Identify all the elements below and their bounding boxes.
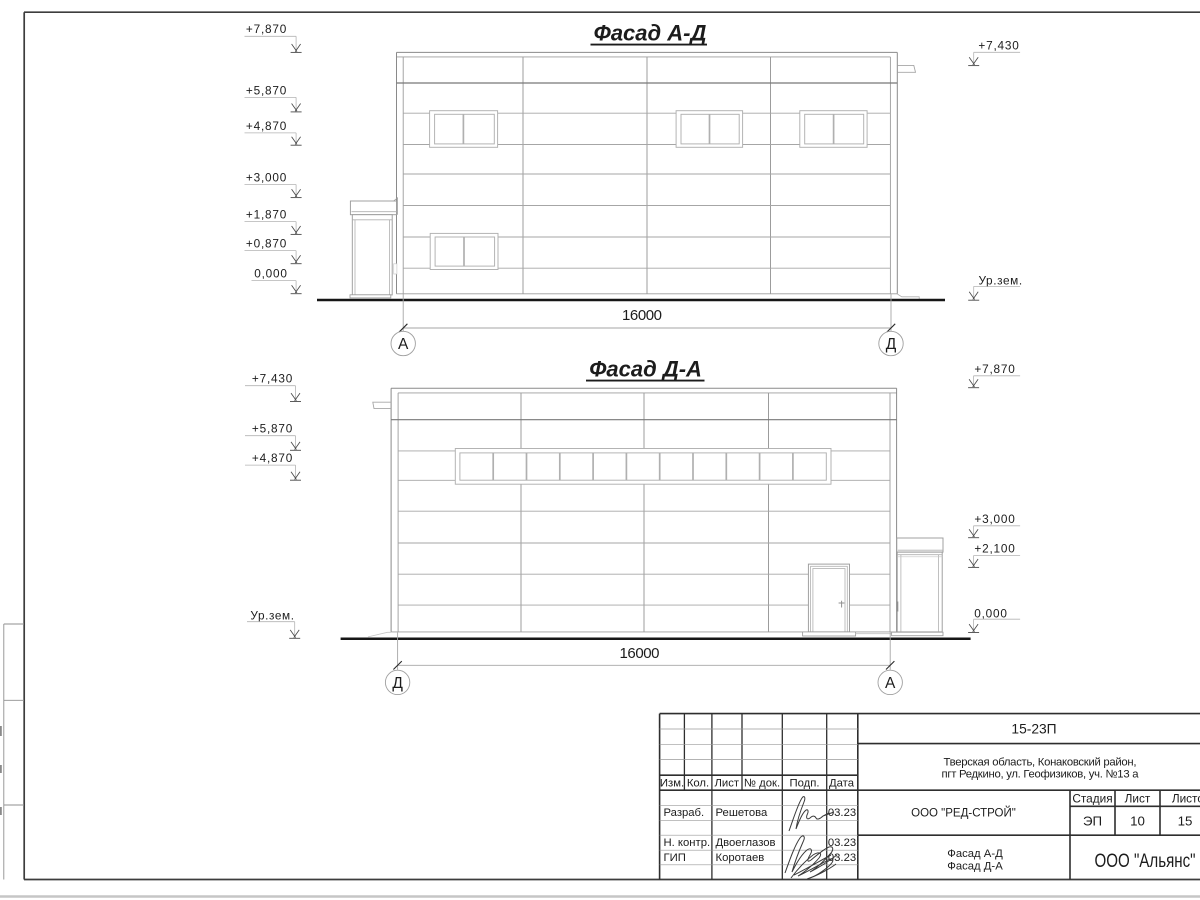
svg-text:ГИП: ГИП	[664, 852, 686, 864]
svg-text:Фасад Д-А: Фасад Д-А	[589, 357, 702, 382]
svg-text:+4,870: +4,870	[246, 119, 287, 133]
svg-text:Д: Д	[392, 675, 403, 692]
svg-text:Подп.: Подп.	[789, 777, 819, 789]
svg-text:Двоеглазов: Двоеглазов	[716, 837, 776, 849]
svg-text:А: А	[885, 675, 896, 692]
svg-text:№ док.: № док.	[744, 777, 780, 789]
svg-text:+7,870: +7,870	[974, 362, 1015, 376]
svg-text:Фасад А-Д: Фасад А-Д	[947, 848, 1003, 860]
svg-text:+0,870: +0,870	[246, 237, 287, 251]
svg-text:15-23П: 15-23П	[1011, 721, 1056, 736]
svg-text:+4,870: +4,870	[252, 451, 293, 465]
svg-text:0,000: 0,000	[974, 606, 1008, 620]
svg-text:Коротаев: Коротаев	[716, 852, 765, 864]
svg-text:Разраб.: Разраб.	[664, 807, 705, 819]
svg-text:ЭП: ЭП	[1083, 813, 1102, 828]
svg-text:15: 15	[1178, 813, 1193, 828]
svg-text:+2,100: +2,100	[974, 542, 1015, 556]
svg-text:Ур.зем.: Ур.зем.	[250, 608, 294, 622]
svg-text:16000: 16000	[620, 645, 660, 662]
svg-text:Фасад А-Д: Фасад А-Д	[594, 21, 707, 46]
svg-text:пгт Редкино, ул. Геофизиков, у: пгт Редкино, ул. Геофизиков, уч. №13 а	[942, 769, 1140, 781]
svg-text:Лист: Лист	[1125, 791, 1151, 805]
svg-text:Дата: Дата	[829, 777, 855, 789]
svg-text:+7,430: +7,430	[252, 372, 293, 386]
svg-text:Д: Д	[886, 336, 897, 353]
svg-text:Изм.: Изм.	[660, 777, 684, 789]
svg-text:0,000: 0,000	[254, 267, 288, 281]
svg-text:16000: 16000	[622, 307, 662, 324]
svg-text:+3,000: +3,000	[974, 512, 1015, 526]
svg-text:ООО "РЕД-СТРОЙ": ООО "РЕД-СТРОЙ"	[911, 807, 1016, 820]
svg-text:Ур.зем.: Ур.зем.	[978, 274, 1022, 288]
svg-text:Листов: Листов	[1172, 791, 1200, 805]
svg-text:Лист: Лист	[715, 777, 740, 789]
svg-text:Решетова: Решетова	[716, 807, 768, 819]
svg-text:+7,430: +7,430	[978, 38, 1019, 52]
svg-text:+3,000: +3,000	[246, 171, 287, 185]
svg-text:Н. контр.: Н. контр.	[664, 837, 711, 849]
svg-text:ООО "Альянс": ООО "Альянс"	[1095, 851, 1196, 872]
svg-text:Тверская область, Конаковский: Тверская область, Конаковский район,	[944, 757, 1137, 769]
svg-text:Кол.: Кол.	[687, 777, 709, 789]
svg-text:10: 10	[1130, 813, 1145, 828]
svg-text:А: А	[398, 336, 409, 353]
svg-text:+5,870: +5,870	[252, 422, 293, 436]
svg-text:+5,870: +5,870	[246, 83, 287, 97]
svg-text:+1,870: +1,870	[246, 208, 287, 222]
svg-text:Стадия: Стадия	[1072, 791, 1112, 805]
svg-text:+7,870: +7,870	[246, 22, 287, 36]
svg-text:Фасад Д-А: Фасад Д-А	[947, 860, 1003, 872]
